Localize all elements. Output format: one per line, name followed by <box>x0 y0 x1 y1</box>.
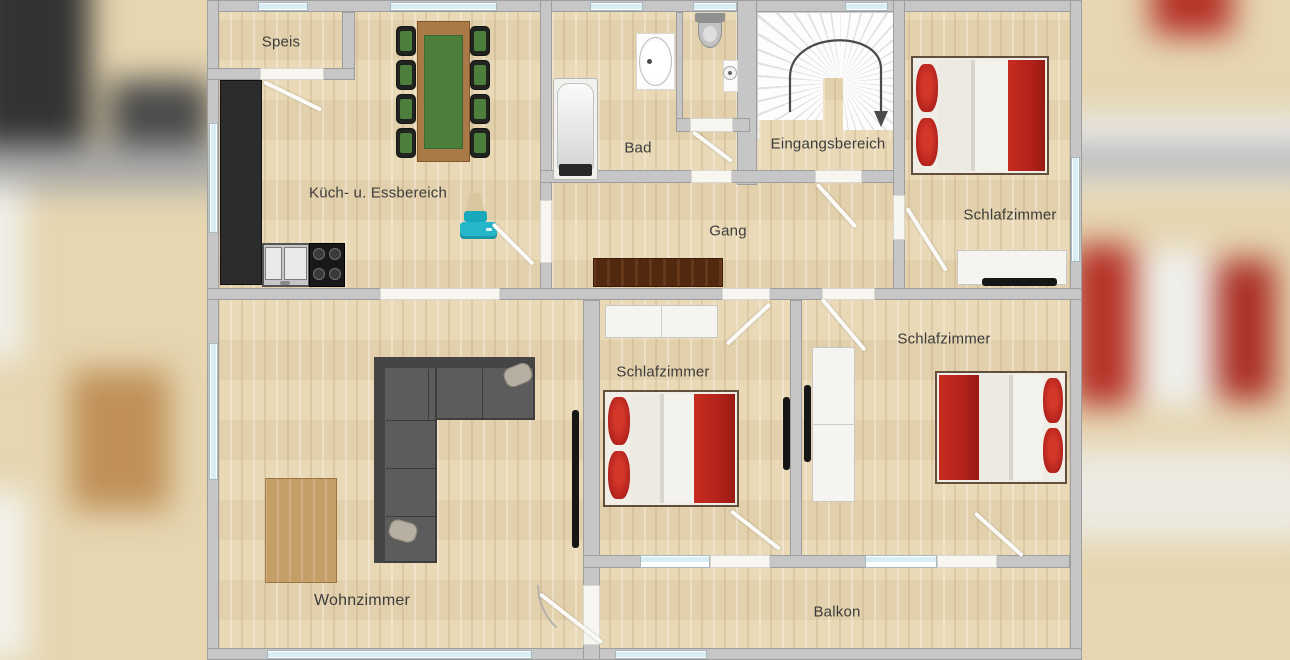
door-opening-balcony-middle <box>710 555 770 568</box>
wall-bedroom-top-left <box>893 0 905 300</box>
background-blur-left <box>0 0 208 660</box>
burner <box>329 268 341 280</box>
pillow-icon <box>916 64 938 112</box>
sink-basin <box>265 247 282 280</box>
mattress <box>630 394 694 503</box>
dining-chair <box>397 27 415 55</box>
drain <box>647 59 652 64</box>
stove <box>309 243 345 287</box>
pillow-icon <box>1043 378 1063 423</box>
window-top-speis <box>258 2 308 11</box>
background-blur-right <box>1082 0 1290 660</box>
washbasin <box>639 37 672 86</box>
wall-main-horizontal <box>207 288 1082 300</box>
background-blur-right-content <box>1082 0 1290 660</box>
burner <box>329 248 341 260</box>
door-opening-kitchen <box>540 200 552 263</box>
door-opening-bad <box>691 170 732 183</box>
window-balcony-1 <box>640 555 710 568</box>
wc-basin <box>723 66 737 80</box>
door-opening-speis <box>260 68 324 80</box>
door-opening-balcony-right <box>937 555 997 568</box>
door-opening-bedroom-right <box>822 288 875 300</box>
room-label-speis: Speis <box>262 34 301 51</box>
wall-outer-top <box>207 0 1082 12</box>
dining-chair <box>471 129 489 157</box>
window-left-living <box>209 343 218 480</box>
window-top-wc <box>693 2 737 11</box>
dining-chair <box>471 61 489 89</box>
blur-blob <box>1142 250 1212 405</box>
coffee-table <box>265 478 337 583</box>
sofa-backrest <box>374 357 385 563</box>
blur-blob <box>0 0 90 160</box>
toilet-bowl <box>703 26 717 42</box>
tv-icon <box>982 278 1057 286</box>
pillow-icon <box>1043 428 1063 473</box>
sofa-seam <box>386 420 436 421</box>
wall-bad-wc <box>676 12 683 132</box>
wardrobe <box>605 305 718 338</box>
door-opening-entrance <box>815 170 862 183</box>
tv-icon <box>804 385 811 462</box>
wall-wc-entrance <box>737 0 757 185</box>
sofa-seam <box>386 516 436 517</box>
blanket <box>694 394 735 503</box>
blur-blob <box>1152 0 1232 35</box>
window-top-entrance <box>845 2 888 11</box>
door-opening-bedroom-middle <box>722 288 770 300</box>
bathtub-faucet <box>559 164 592 176</box>
pillow-icon <box>916 118 938 166</box>
wall-bedrooms-divider <box>790 300 802 568</box>
door-opening-wc <box>690 118 733 132</box>
blur-blob <box>1217 260 1275 400</box>
table-runner <box>424 35 463 149</box>
dining-chair <box>397 61 415 89</box>
printer-icon <box>464 211 487 222</box>
toilet-tank <box>695 13 725 22</box>
mattress <box>938 60 1008 171</box>
floorplan: Speis Küch- u. Essbereich Bad Gang Einga… <box>207 0 1082 660</box>
room-label-entrance: Eingangsbereich <box>771 136 886 153</box>
arrow-head <box>874 111 888 127</box>
sofa-seam <box>428 369 429 419</box>
window-bottom-balcony <box>615 650 707 659</box>
wardrobe-seam <box>661 305 662 338</box>
drain <box>728 71 732 75</box>
wardrobe-seam <box>812 424 855 425</box>
kitchen-sink-unit <box>262 243 310 287</box>
blur-blob <box>1082 150 1290 170</box>
window-top-bad <box>590 2 643 11</box>
room-label-balcony: Balkon <box>813 604 860 621</box>
window-right-bedroom-top <box>1071 157 1080 262</box>
room-label-bad: Bad <box>624 140 651 157</box>
tv-icon <box>572 410 579 548</box>
blur-blob <box>1082 245 1134 405</box>
burner <box>313 268 325 280</box>
bed <box>913 58 1047 173</box>
blur-blob <box>0 490 30 660</box>
background-blur-left-content <box>0 0 208 660</box>
sink-basin <box>284 247 307 280</box>
pillow-icon <box>608 451 630 499</box>
room-label-gang: Gang <box>709 223 747 240</box>
passage-kitchen-living <box>380 288 500 300</box>
room-label-bedroom-middle: Schlafzimmer <box>616 364 709 381</box>
floorplan-canvas: Speis Küch- u. Essbereich Bad Gang Einga… <box>0 0 1290 660</box>
blanket <box>1008 60 1045 171</box>
wall-outer-left <box>207 0 219 660</box>
pillow-icon <box>608 397 630 445</box>
bathtub <box>553 78 598 180</box>
blur-blob <box>0 145 208 190</box>
window-top-dining <box>390 2 497 11</box>
printer-detail <box>486 228 492 231</box>
wall-outer-right <box>1070 0 1082 660</box>
bathtub-inner <box>557 83 594 171</box>
dining-chair <box>471 95 489 123</box>
door-opening-bedroom-top <box>893 195 905 240</box>
window-bottom-living <box>267 650 532 659</box>
dining-chair <box>397 129 415 157</box>
dining-chair <box>397 95 415 123</box>
blur-blob <box>1082 450 1290 540</box>
sofa-seam <box>386 468 436 469</box>
window-balcony-2 <box>865 555 937 568</box>
blur-blob <box>70 370 170 510</box>
bed <box>605 392 737 505</box>
wardrobe <box>812 347 855 502</box>
sideboard <box>593 258 723 287</box>
room-label-kitchen: Küch- u. Essbereich <box>309 185 447 202</box>
tv-icon <box>783 397 790 470</box>
room-label-living: Wohnzimmer <box>314 592 410 610</box>
bed <box>937 373 1065 482</box>
kitchen-counter <box>220 80 262 285</box>
stairs-direction-arrow-icon <box>757 12 897 140</box>
dining-chair <box>471 27 489 55</box>
room-label-bedroom-top: Schlafzimmer <box>963 207 1056 224</box>
mattress <box>979 375 1043 480</box>
sink-faucet <box>280 281 290 285</box>
window-left-kitchen <box>209 123 218 233</box>
room-label-bedroom-right: Schlafzimmer <box>897 331 990 348</box>
blanket <box>939 375 979 480</box>
burner <box>313 248 325 260</box>
blur-blob <box>0 185 25 360</box>
sofa-seam <box>482 369 483 419</box>
